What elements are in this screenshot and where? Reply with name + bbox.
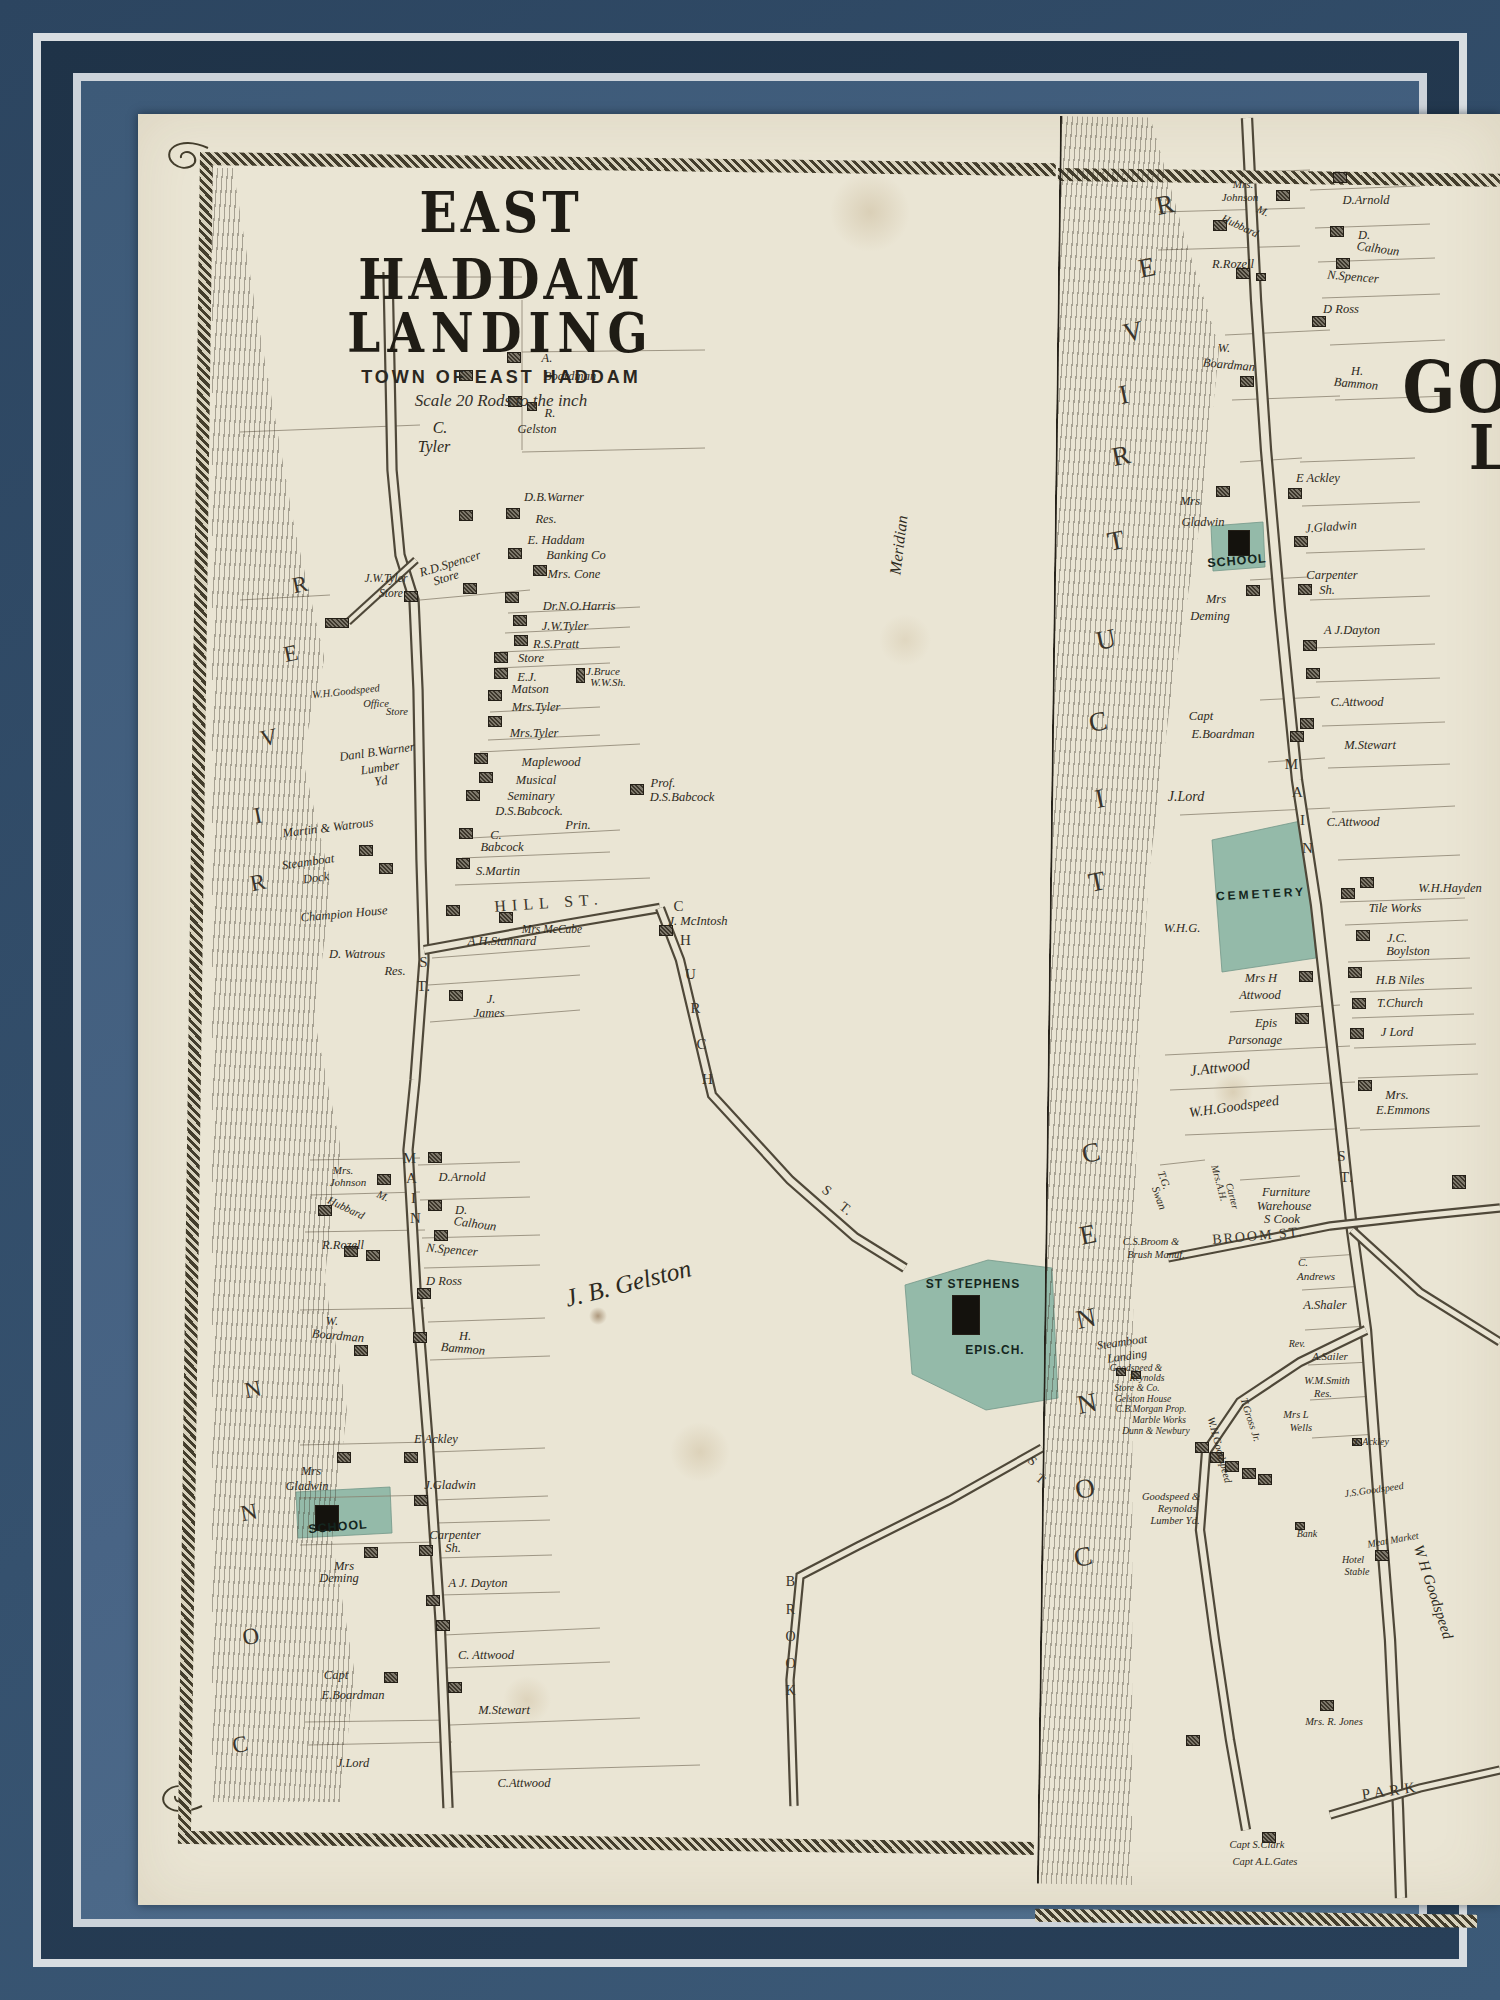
building [533,565,547,576]
map-label: Andrews [1297,1271,1335,1282]
map-label: S [1337,1149,1346,1164]
map-label: Capt A.L.Gates [1233,1857,1298,1868]
map-label: J. McIntosh [668,915,727,928]
map-label: C. [1298,1257,1308,1268]
map-label: T. [417,979,431,994]
map-label: A J.Dayton [1324,624,1380,637]
map-content: EAST HADDAM LANDING TOWN OF EAST HADDAM … [0,0,1500,2000]
map-label: J.Gladwin [424,1479,476,1492]
map-label: Epis [1255,1017,1277,1030]
map-label: Attwood [1239,989,1281,1002]
map-label: O [785,1657,796,1671]
map-label: C. [433,420,448,436]
map-label: J.W.Tyler [365,573,408,585]
building [1336,258,1350,269]
building [494,652,508,663]
building [513,615,527,626]
building [514,635,528,646]
building [466,790,480,801]
public-building-icon [952,1295,980,1335]
building [1300,718,1314,729]
map-label: Matson [511,683,549,696]
map-label: W. [326,1315,338,1328]
map-label: Tile Works [1369,902,1422,915]
map-label: Carpenter [429,1529,480,1542]
map-label: ST STEPHENS [926,1278,1020,1290]
building [325,618,349,628]
building [337,1452,351,1463]
building [1276,190,1290,201]
map-label: Rev. [1289,1339,1306,1349]
building [364,1547,378,1558]
building [1216,486,1230,497]
map-label: J.W.Tyler [542,620,589,633]
map-label: Seminary [507,790,554,803]
building [463,583,477,594]
map-label: D.Arnold [439,1171,486,1184]
map-label: Res. [535,513,556,526]
map-label: T.Church [1377,997,1423,1010]
map-label: Bank [1297,1529,1318,1539]
building [428,1200,442,1211]
building [428,1152,442,1163]
building [1330,226,1344,237]
map-label: C.S.Broom & [1123,1237,1180,1248]
building [1452,1175,1466,1189]
map-label: D Ross [1323,303,1359,316]
map-label: Brush Manuf. [1127,1250,1185,1261]
map-label: Dunn & Newbury [1122,1427,1190,1437]
map-label: H.B Niles [1376,974,1425,987]
building [505,592,519,603]
map-label: Mrs.Tyler [510,727,559,740]
map-label: Mrs H [1245,972,1277,985]
building [446,905,460,916]
building [488,716,502,727]
map-label: R.S.Pratt [533,638,579,651]
map-label: Warehouse [1257,1200,1312,1213]
map-label: K [785,1684,796,1698]
building [1295,1013,1309,1024]
map-label: D Ross [426,1275,462,1288]
map-label: Mrs L [1283,1410,1308,1421]
building [479,772,493,783]
map-label: Mrs [301,1465,321,1478]
map-label: J.C. [1387,932,1407,945]
map-label: Deming [319,1572,359,1585]
building [426,1595,440,1606]
map-label: M.Stewart [478,1704,530,1717]
map-label: U [685,967,697,982]
map-label: Capt [324,1669,348,1682]
map-label: Prin. [565,819,590,832]
building [488,690,502,701]
map-label: Capt S.Clark [1230,1840,1285,1851]
map-label: W.M.Smith [1304,1376,1350,1387]
building [494,668,508,679]
building [404,591,418,602]
map-label: B [786,1575,796,1589]
building [379,863,393,874]
map-label: Mrs. [1385,1089,1408,1102]
title-line-1: EAST HADDAM [283,179,719,312]
map-label: Dr.N.O.Harris [543,600,616,613]
map-label: Mrs. [333,1165,353,1176]
building [630,784,644,795]
map-label: E. Haddam [528,534,585,547]
map-label: Store [386,707,408,718]
map-label: Store & Co. [1114,1384,1159,1394]
building [1242,1468,1256,1479]
map-label: E.Boardman [321,1689,384,1702]
map-label: L [1469,416,1500,478]
map-label: D.B.Warner [524,491,584,504]
map-label: Mrs. [1233,179,1253,190]
map-label: James [473,1007,504,1020]
map-label: Mrs [1180,495,1200,508]
building [404,1452,418,1463]
map-label: W.W.Sh. [590,677,626,688]
map-label: Boylston [1386,945,1430,958]
building [1320,1700,1334,1711]
map-label: Goodspeed & [1142,1492,1200,1503]
map-label: Res. [384,965,405,978]
map-label: J.Lord [337,1757,370,1770]
map-label: A.H.Stannard [468,935,536,948]
map-label: R.Rozell [1212,258,1254,271]
map-label: Johnson [330,1177,367,1188]
map-label: C.Attwood [497,1777,550,1790]
building [449,990,463,1001]
map-label: E Ackley [414,1433,458,1446]
building [1350,1028,1364,1039]
building [359,845,373,856]
map-label: E Ackley [1296,472,1340,485]
map-label: Tyler [418,439,451,455]
map-label: C.B.Morgan Prop. [1116,1405,1187,1415]
map-label: Hotel [1342,1555,1364,1565]
map-label: A J. Dayton [448,1577,507,1590]
building [1256,273,1266,281]
map-label: Office [363,699,389,710]
map-label: Wells [1290,1423,1312,1434]
map-label: J. [487,993,496,1006]
title-line-3: TOWN OF EAST HADDAM [283,367,719,388]
map-label: C [673,899,684,914]
map-label: O [785,1630,796,1644]
building [1352,998,1366,1009]
map-label: S [419,955,428,970]
building [366,1250,380,1261]
title-line-2: LANDING [283,302,719,365]
building [1360,877,1374,888]
map-label: W.H.Hayden [1418,882,1481,895]
map-label: H. [459,1330,471,1343]
map-label: J. Ackley [1353,1437,1389,1447]
building [456,858,470,869]
building [384,1672,398,1683]
building [417,1288,431,1299]
map-label: I [411,1191,417,1206]
map-label: H [702,1072,714,1087]
building [1288,488,1302,499]
map-label: D.Arnold [1343,194,1390,207]
map-label: Res. [1314,1389,1332,1400]
map-label: J.Lord [1168,790,1204,804]
map-label: R [786,1603,796,1617]
building [508,548,522,559]
building [506,508,520,519]
map-label: Prof. [651,777,676,790]
map-label: E.Emmons [1376,1104,1430,1117]
building [1195,1442,1209,1453]
map-label: W.H.G. [1164,922,1201,935]
map-label: Mrs [1206,593,1226,606]
map-label: A.Sailer [1312,1351,1348,1362]
map-label: E.Boardman [1191,728,1254,741]
map-label: Babcock [480,841,523,854]
map-label: M [1285,757,1299,772]
map-label: Store [518,652,544,665]
building [1306,668,1320,679]
map-label: C. Attwood [458,1649,514,1662]
building [1303,640,1317,651]
map-label: Mrs. Cone [548,568,601,581]
map-label: C.Attwood [1330,696,1383,709]
map-label: Gladwin [285,1480,328,1493]
map-label: Yd [374,774,389,788]
map-label: C [696,1037,707,1052]
map-label: A.Shaler [1303,1299,1346,1312]
map-label: N [1302,841,1314,856]
map-label: Musical [516,774,556,787]
building [1341,888,1355,899]
map-label: Carpenter [1306,569,1357,582]
map-label: H. [1351,365,1363,378]
map-label: Stable [1345,1567,1370,1577]
map-label: Maplewood [521,756,580,769]
building [413,1332,427,1343]
building [576,668,585,683]
map-label: Deming [1190,610,1230,623]
map-label: D.S.Babcock [650,791,715,804]
map-label: Capt [1189,710,1213,723]
building [1312,316,1326,327]
map-label: R [690,1001,701,1016]
map-label: D. Watrous [329,948,385,961]
map-label: D.S.Babcock. [495,805,563,818]
map-label: Store [379,588,403,600]
map-label: M [403,1151,417,1166]
map-label: A [1292,785,1304,800]
building [434,1230,448,1241]
map-label: I [1300,813,1306,828]
map-label: Gelston [518,423,557,436]
building [1290,731,1304,742]
map-label: Gladwin [1181,516,1224,529]
map-label: S Cook [1264,1213,1300,1226]
building [459,828,473,839]
map-label: W. [1218,342,1230,355]
map-label: Furniture [1262,1186,1310,1199]
map-label: Banking Co [546,549,605,562]
map-label: R.Rozell [322,1239,364,1252]
map-label: H [680,933,692,948]
map-label: T. [1340,1170,1354,1185]
map-label: Sh. [1319,584,1335,597]
building [1348,967,1362,978]
map-label: Parsonage [1228,1034,1282,1047]
map-label: A [406,1171,418,1186]
map-label: Mrs. R. Jones [1305,1717,1363,1728]
map-label: Sh. [445,1542,461,1555]
building [1356,930,1370,941]
map-label: Marble Works [1132,1416,1186,1426]
building [1246,585,1260,596]
map-label: Lumber Yd. [1150,1516,1199,1527]
building [474,753,488,764]
map-label: Reynolds [1158,1504,1197,1515]
building [1258,1474,1272,1485]
map-label: C.Attwood [1326,816,1379,829]
building [1375,1550,1389,1561]
building [419,1545,433,1556]
map-label: Johnson [1222,192,1259,203]
map-label: Mrs.Tyler [512,701,561,714]
building [1186,1735,1200,1746]
map-label: S.Martin [476,865,520,878]
building [1299,971,1313,982]
building [1358,1080,1372,1091]
building [1240,376,1254,387]
building [1298,584,1312,595]
building [1333,172,1347,183]
map-label: N [410,1211,422,1226]
building [459,510,473,521]
title-scale: Scale 20 Rods to the inch [283,391,719,411]
building [448,1682,462,1693]
building [1294,536,1308,547]
map-label: J Lord [1381,1026,1414,1039]
map-title: EAST HADDAM LANDING TOWN OF EAST HADDAM … [283,188,719,411]
building [377,1174,391,1185]
building [354,1345,368,1356]
building [436,1620,450,1631]
map-label: EPIS.CH. [965,1344,1024,1356]
building [414,1495,428,1506]
map-label: M.Stewart [1344,739,1396,752]
